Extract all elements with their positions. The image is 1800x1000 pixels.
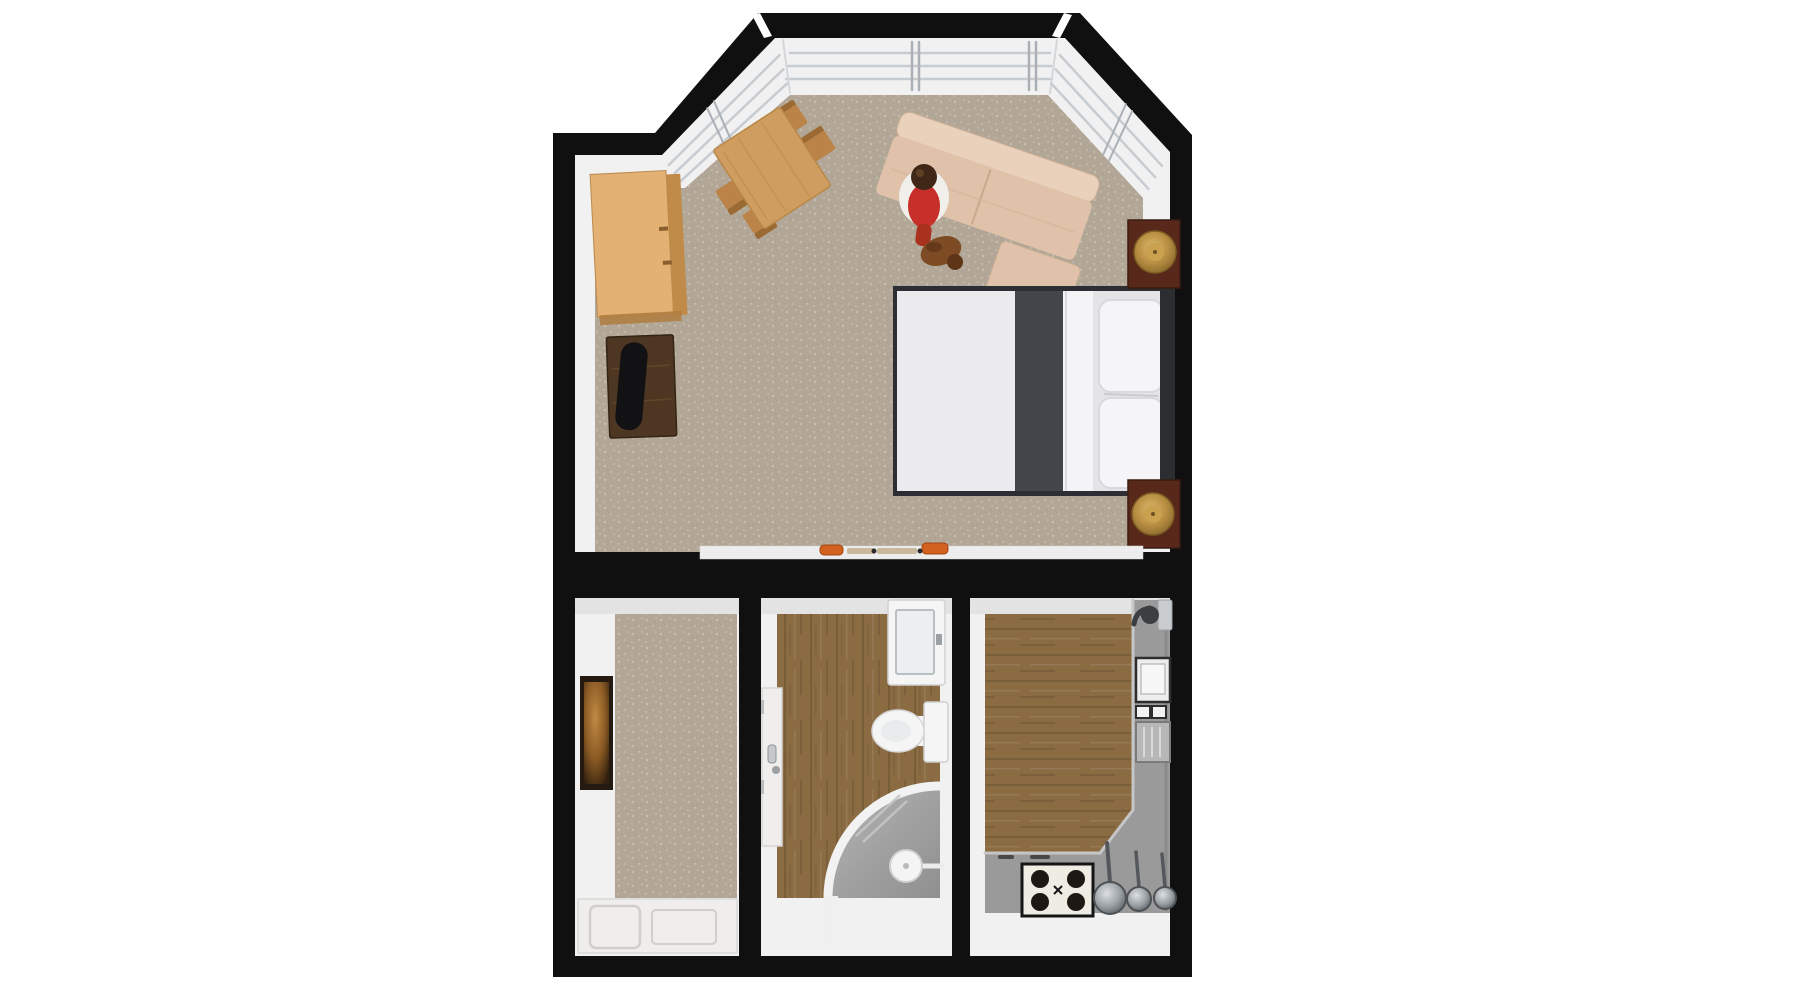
pan: [1094, 882, 1126, 914]
headboard: [1160, 286, 1175, 496]
double-bed: [893, 286, 1175, 496]
burner: [1031, 870, 1049, 888]
pillow: [1099, 300, 1163, 392]
tv-stand: [606, 335, 676, 438]
shelf-item-tan: [877, 548, 917, 554]
burner: [1031, 893, 1049, 911]
pan: [1154, 887, 1176, 909]
floor-plan-svg: [0, 0, 1800, 1000]
room-kitchen: [970, 598, 1176, 956]
front-door-panel: [578, 899, 737, 953]
shelf-item-tan: [847, 548, 875, 554]
room-bathroom: [758, 598, 952, 956]
dresser: [590, 170, 688, 326]
person-head: [911, 164, 937, 190]
door-handle: [768, 745, 776, 763]
sink-faucet: [936, 634, 942, 645]
divider-bathroom-kitchen: [952, 598, 970, 956]
bed-runner-band: [1015, 291, 1063, 491]
bathroom-door: [758, 688, 782, 846]
cabinet-handle: [1030, 855, 1050, 859]
dresser-handle: [659, 227, 668, 231]
wall-artwork: [580, 676, 613, 790]
shelf-item-orange: [922, 543, 948, 554]
burner: [1067, 893, 1085, 911]
nightstand-bottom: [1128, 480, 1180, 548]
shelf-item-orange: [820, 545, 843, 555]
bathroom-sink-vanity: [888, 600, 945, 685]
room-entry-hall: [575, 598, 739, 956]
stove: [1022, 864, 1093, 916]
burner: [1067, 870, 1085, 888]
kitchen-appliance: [1136, 658, 1170, 762]
floor-plan-image: [0, 0, 1800, 1000]
dresser-handle: [663, 260, 672, 264]
divider-hall-bathroom: [739, 598, 761, 956]
pan: [1127, 887, 1151, 911]
pillow: [1099, 398, 1163, 488]
toilet-tank: [924, 702, 948, 762]
cabinet-handle: [998, 855, 1014, 859]
room-living-bedroom: [575, 13, 1180, 558]
nightstand-top: [1128, 220, 1180, 288]
